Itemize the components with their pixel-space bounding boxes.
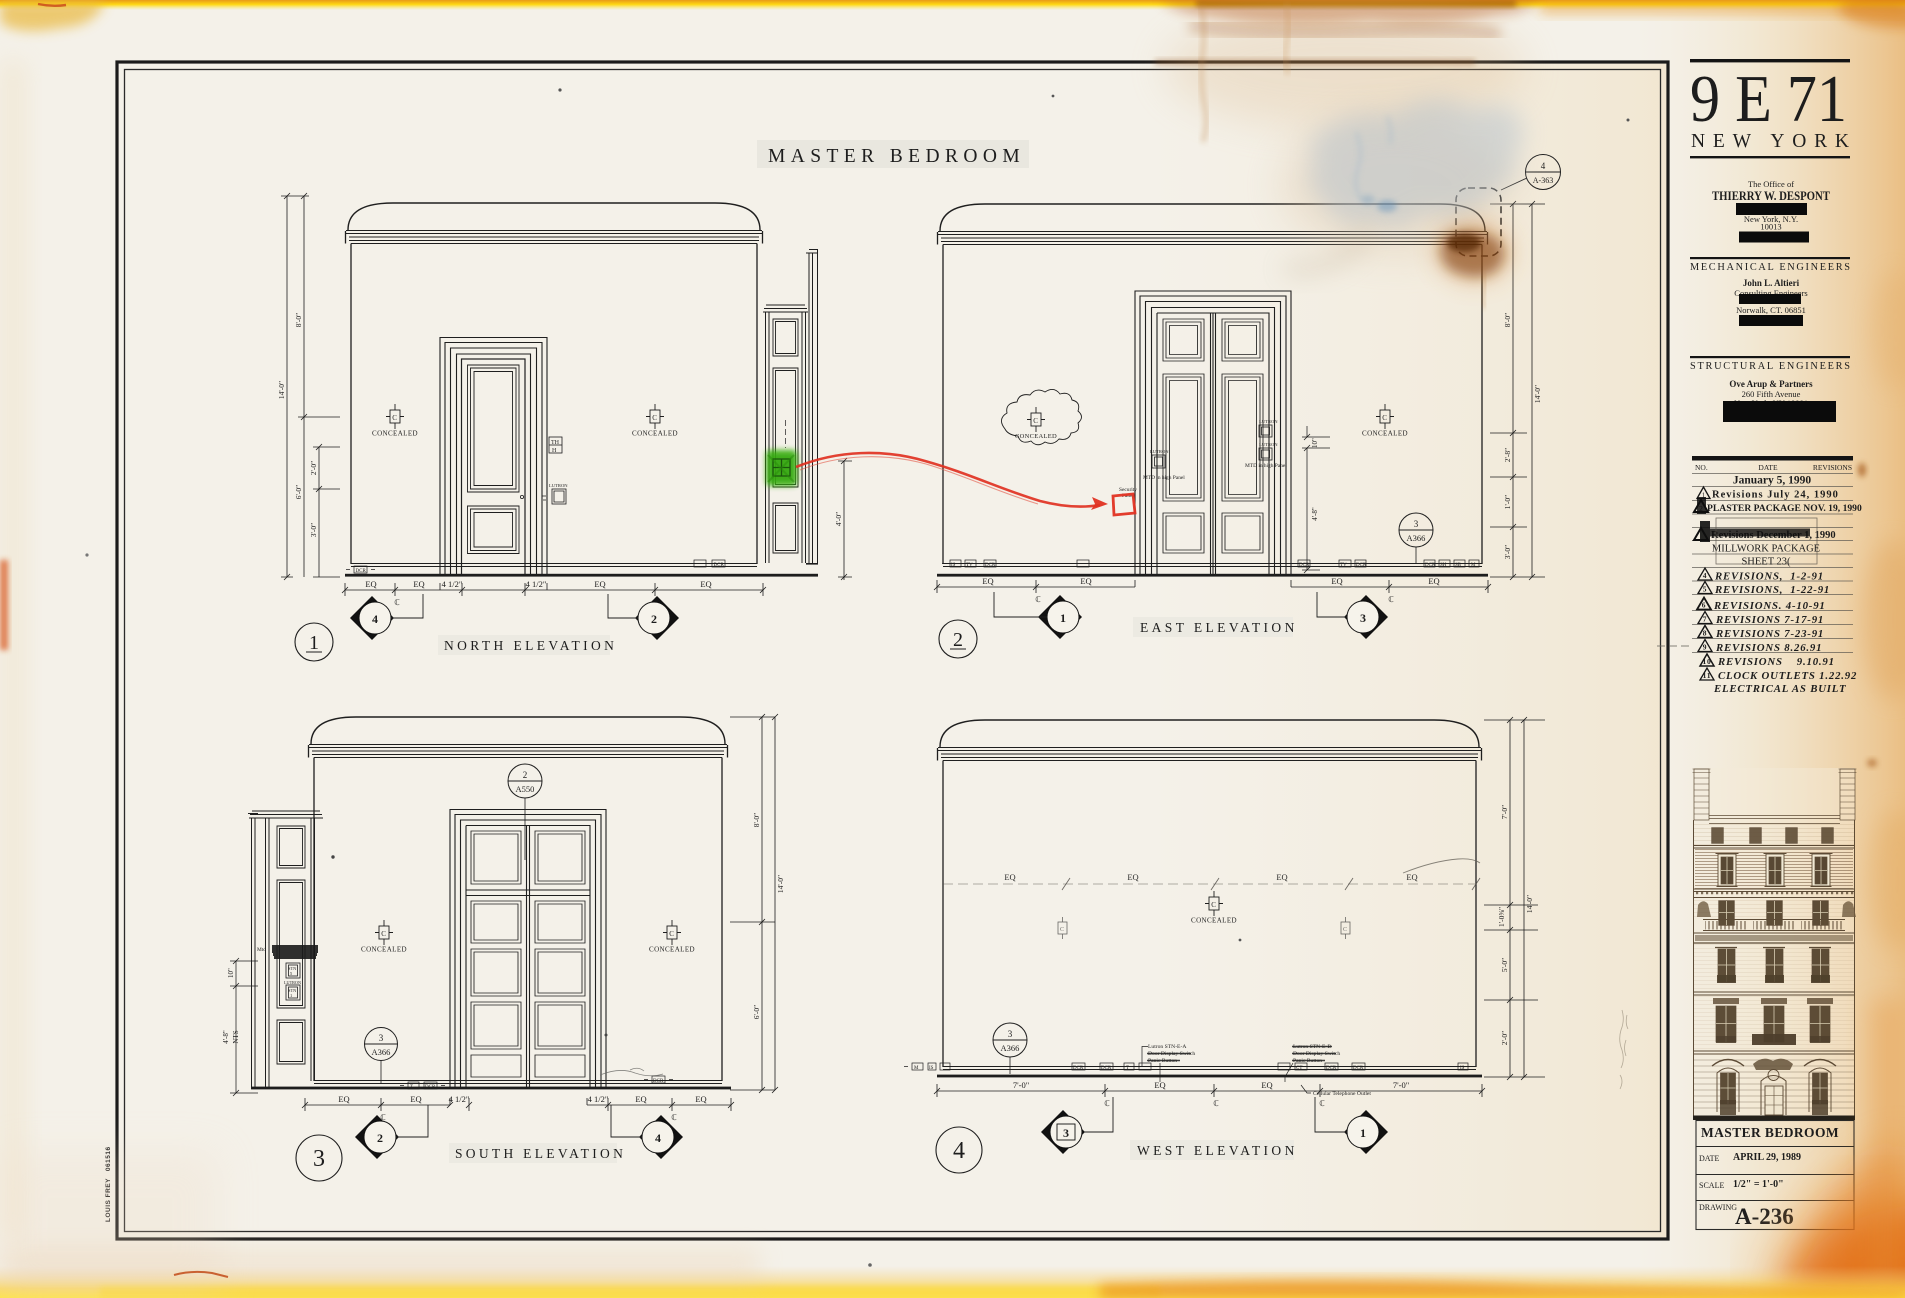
svg-text:Mtd: Mtd xyxy=(257,947,266,953)
svg-text:4 1/2": 4 1/2" xyxy=(588,1094,609,1104)
svg-text:CONCEALED: CONCEALED xyxy=(1362,430,1408,438)
svg-text:DCR: DCR xyxy=(714,563,725,568)
svg-text:4 1/2": 4 1/2" xyxy=(526,579,547,589)
svg-text:REVISIONS, 1-2-91: REVISIONS, 1-2-91 xyxy=(1714,571,1824,583)
svg-text:EQ: EQ xyxy=(1004,872,1015,882)
svg-text:1: 1 xyxy=(309,632,319,654)
svg-text:1'-0": 1'-0" xyxy=(1503,495,1512,509)
svg-text:ℂ: ℂ xyxy=(1035,595,1041,604)
svg-text:DCR: DCR xyxy=(1326,1066,1337,1071)
svg-text:LUTRON: LUTRON xyxy=(1259,419,1278,424)
svg-text:C: C xyxy=(652,414,657,422)
svg-text:14'-0": 14'-0" xyxy=(277,381,286,399)
svg-text:10": 10" xyxy=(1311,438,1319,448)
svg-text:9: 9 xyxy=(1703,643,1708,652)
svg-text:LUTRON: LUTRON xyxy=(1150,449,1169,454)
svg-text:DCR: DCR xyxy=(356,569,367,574)
svg-text:ELECTRICAL AS BUILT: ELECTRICAL AS BUILT xyxy=(1713,683,1846,695)
svg-text:DCR: DCR xyxy=(1101,1066,1112,1071)
svg-text:C: C xyxy=(392,414,397,422)
svg-text:CONCEALED: CONCEALED xyxy=(632,430,678,438)
svg-text:Norwalk, CT. 06851: Norwalk, CT. 06851 xyxy=(1736,305,1806,315)
svg-text:MASTER BEDROOM: MASTER BEDROOM xyxy=(1701,1125,1839,1140)
svg-text:3: 3 xyxy=(1360,611,1366,625)
svg-text:3: 3 xyxy=(313,1146,325,1172)
svg-text:TV: TV xyxy=(1340,563,1347,568)
svg-text:4'-0": 4'-0" xyxy=(834,512,843,526)
svg-text:1: 1 xyxy=(1360,1126,1366,1140)
svg-text:7'-0": 7'-0" xyxy=(1013,1080,1029,1090)
svg-text:CONCEALED: CONCEALED xyxy=(1191,917,1237,925)
svg-text:CT: CT xyxy=(1296,1066,1302,1071)
svg-text:2: 2 xyxy=(523,770,528,780)
svg-text:C: C xyxy=(669,930,674,938)
svg-text:4: 4 xyxy=(953,1138,965,1164)
svg-text:3'-0": 3'-0" xyxy=(309,523,318,537)
svg-text:7'-0": 7'-0" xyxy=(1500,805,1509,819)
svg-text:4: 4 xyxy=(655,1131,661,1145)
svg-text:MTD in high Panel: MTD in high Panel xyxy=(1143,475,1185,481)
svg-text:Revisions July 24, 1990: Revisions July 24, 1990 xyxy=(1712,490,1839,501)
svg-text:6'-0": 6'-0" xyxy=(294,485,303,499)
svg-text:IS: IS xyxy=(929,1066,934,1071)
svg-text:2'-0": 2'-0" xyxy=(309,461,318,475)
svg-text:EQ: EQ xyxy=(1154,1080,1165,1090)
svg-text:4'-8": 4'-8" xyxy=(1311,507,1319,521)
svg-text:MILLWORK PACKAGE: MILLWORK PACKAGE xyxy=(1712,544,1820,555)
svg-text:4: 4 xyxy=(372,612,378,626)
svg-text:EQ: EQ xyxy=(594,579,605,589)
svg-text:T: T xyxy=(1126,1066,1129,1071)
svg-text:10": 10" xyxy=(227,968,235,978)
svg-text:TH: TH xyxy=(551,440,560,446)
svg-text:SCALE: SCALE xyxy=(1699,1181,1724,1190)
svg-text:EQ: EQ xyxy=(695,1094,706,1104)
svg-text:5'-0": 5'-0" xyxy=(1500,958,1509,972)
svg-text:H: H xyxy=(552,448,557,454)
svg-text:EQ: EQ xyxy=(1261,1080,1272,1090)
svg-text:EQ: EQ xyxy=(1127,872,1138,882)
svg-text:CLOCK OUTLETS 1.22.92: CLOCK OUTLETS 1.22.92 xyxy=(1718,670,1857,682)
svg-text:4: 4 xyxy=(1703,571,1708,580)
svg-text:2: 2 xyxy=(953,629,963,651)
svg-text:NEW YORK: NEW YORK xyxy=(1691,131,1849,152)
svg-text:ℂ: ℂ xyxy=(1319,1099,1325,1108)
svg-text:LUTRON: LUTRON xyxy=(549,483,568,488)
svg-text:2: 2 xyxy=(377,1131,383,1145)
svg-text:THIERRY W. DESPONT: THIERRY W. DESPONT xyxy=(1712,188,1830,203)
svg-text:MTD in high Panel: MTD in high Panel xyxy=(1245,463,1287,469)
svg-text:EQ: EQ xyxy=(365,579,376,589)
svg-text:8'-0": 8'-0" xyxy=(1503,313,1512,327)
svg-text:A550: A550 xyxy=(516,784,535,794)
svg-text:John L. Altieri: John L. Altieri xyxy=(1743,278,1800,288)
svg-text:NORTH ELEVATION: NORTH ELEVATION xyxy=(444,638,617,653)
svg-text:REVISIONS, 1-22-91: REVISIONS, 1-22-91 xyxy=(1714,584,1830,596)
svg-text:C: C xyxy=(381,930,386,938)
svg-text:WEST ELEVATION: WEST ELEVATION xyxy=(1137,1143,1298,1158)
svg-text:ℂ: ℂ xyxy=(1213,1099,1219,1108)
svg-text:A366: A366 xyxy=(372,1047,391,1057)
svg-text:MASTER BEDROOM: MASTER BEDROOM xyxy=(768,146,1025,167)
svg-text:14'-0": 14'-0" xyxy=(1533,385,1542,403)
svg-text:DCR: DCR xyxy=(1073,1066,1084,1071)
svg-text:ℂ: ℂ xyxy=(1388,595,1394,604)
svg-text:DCR: DCR xyxy=(1425,563,1436,568)
svg-text:8: 8 xyxy=(1703,629,1708,638)
svg-text:M: M xyxy=(1471,563,1476,568)
svg-text:6'-0": 6'-0" xyxy=(752,1005,761,1019)
svg-text:DCR: DCR xyxy=(1353,1066,1364,1071)
svg-text:M: M xyxy=(914,1066,919,1071)
svg-text:14'-0": 14'-0" xyxy=(1525,895,1534,913)
svg-text:ℂ: ℂ xyxy=(394,598,400,607)
svg-text:EQ: EQ xyxy=(410,1094,421,1104)
svg-text:5: 5 xyxy=(1703,585,1708,594)
svg-text:7: 7 xyxy=(1703,615,1708,624)
svg-text:2'-0": 2'-0" xyxy=(1500,1031,1509,1045)
svg-text:REVISIONS 9.10.91: REVISIONS 9.10.91 xyxy=(1717,656,1835,668)
svg-text:C: C xyxy=(1060,927,1064,933)
svg-text:LUTRON: LUTRON xyxy=(1259,442,1278,447)
svg-text:8'-0": 8'-0" xyxy=(752,813,761,827)
svg-text:C: C xyxy=(1343,927,1347,933)
svg-text:A366: A366 xyxy=(1001,1043,1020,1053)
svg-text:3: 3 xyxy=(1008,1029,1013,1039)
svg-text:10013: 10013 xyxy=(1760,222,1781,232)
svg-text:C: C xyxy=(1382,414,1387,422)
svg-text:EAST ELEVATION: EAST ELEVATION xyxy=(1140,620,1298,635)
svg-text:EQ: EQ xyxy=(1406,872,1417,882)
svg-text:DCR: DCR xyxy=(1299,563,1310,568)
svg-text:Cellular Telephone Outlet: Cellular Telephone Outlet xyxy=(1313,1091,1371,1097)
svg-text:LUTRON: LUTRON xyxy=(284,980,301,985)
svg-text:NTS: NTS xyxy=(232,1030,240,1043)
svg-text:SH: SH xyxy=(1440,563,1447,568)
svg-text:10: 10 xyxy=(1702,657,1711,666)
svg-text:1: 1 xyxy=(1060,611,1066,625)
svg-text:REVISIONS 7-23-91: REVISIONS 7-23-91 xyxy=(1715,628,1824,640)
svg-text:DCR: DCR xyxy=(653,1079,664,1084)
svg-text:4'-8": 4'-8" xyxy=(222,1030,230,1044)
svg-text:CONCEALED: CONCEALED xyxy=(1015,433,1057,440)
svg-text:4: 4 xyxy=(1541,161,1546,171)
svg-text:TV: TV xyxy=(966,563,973,568)
svg-text:Ove Arup & Partners: Ove Arup & Partners xyxy=(1729,379,1813,389)
svg-text:1'-0⅝": 1'-0⅝" xyxy=(1497,907,1506,927)
svg-text:PLASTER PACKAGE NOV. 19, 1990: PLASTER PACKAGE NOV. 19, 1990 xyxy=(1707,503,1862,514)
svg-text:IS: IS xyxy=(1460,1066,1465,1071)
svg-text:2'-8": 2'-8" xyxy=(1503,448,1512,462)
svg-text:January 5, 1990: January 5, 1990 xyxy=(1733,475,1812,487)
svg-text:9 E 71: 9 E 71 xyxy=(1690,62,1847,136)
svg-text:EQ: EQ xyxy=(1080,576,1091,586)
svg-text:T: T xyxy=(410,1085,413,1090)
svg-text:IS: IS xyxy=(951,563,956,568)
svg-text:C: C xyxy=(1211,901,1216,909)
svg-text:Lutron STN-E-A: Lutron STN-E-A xyxy=(1148,1044,1186,1050)
svg-text:EQ: EQ xyxy=(982,576,993,586)
svg-text:DCR: DCR xyxy=(985,563,996,568)
svg-text:3'-0": 3'-0" xyxy=(1503,545,1512,559)
svg-text:REVISIONS 8.26.91: REVISIONS 8.26.91 xyxy=(1715,642,1822,654)
svg-text:SHEET 23(: SHEET 23( xyxy=(1741,557,1791,568)
svg-text:A366: A366 xyxy=(1407,533,1426,543)
svg-text:SB: SB xyxy=(1455,563,1462,568)
svg-text:EQ: EQ xyxy=(700,579,711,589)
svg-text:CONCEALED: CONCEALED xyxy=(361,946,407,954)
svg-text:1: 1 xyxy=(290,993,292,998)
svg-text:11: 11 xyxy=(1703,671,1712,680)
svg-text:3: 3 xyxy=(379,1033,384,1043)
svg-text:CONCEALED: CONCEALED xyxy=(649,946,695,954)
svg-text:REVISIONS. 4-10-91: REVISIONS. 4-10-91 xyxy=(1713,600,1826,612)
svg-text:DATE: DATE xyxy=(1699,1154,1720,1163)
svg-text:EQ: EQ xyxy=(413,579,424,589)
svg-text:6: 6 xyxy=(1702,601,1707,610)
svg-text:14'-0": 14'-0" xyxy=(776,875,785,893)
svg-text:SOUTH ELEVATION: SOUTH ELEVATION xyxy=(455,1146,626,1161)
svg-text:A-363: A-363 xyxy=(1533,176,1553,185)
svg-text:REVISIONS: REVISIONS xyxy=(1813,463,1852,472)
svg-text:REVISIONS 7-17-91: REVISIONS 7-17-91 xyxy=(1715,614,1824,626)
svg-text:NO.: NO. xyxy=(1695,463,1708,472)
svg-text:DATE: DATE xyxy=(1758,463,1778,472)
svg-text:CONCEALED: CONCEALED xyxy=(372,430,418,438)
svg-text:7'-0": 7'-0" xyxy=(1393,1080,1409,1090)
svg-text:3: 3 xyxy=(1063,1126,1069,1140)
svg-text:8'-0": 8'-0" xyxy=(294,313,303,327)
svg-text:4 1/2": 4 1/2" xyxy=(449,1094,470,1104)
svg-text:EQ: EQ xyxy=(1331,576,1342,586)
svg-text:ℂ: ℂ xyxy=(1104,1099,1110,1108)
svg-text:DCR: DCR xyxy=(425,1085,436,1090)
svg-text:3: 3 xyxy=(1414,519,1419,529)
svg-text:EQ: EQ xyxy=(635,1094,646,1104)
svg-text:ℂ: ℂ xyxy=(671,1113,677,1122)
svg-text:C: C xyxy=(1033,417,1038,425)
svg-text:4 1/2": 4 1/2" xyxy=(442,579,463,589)
svg-text:2: 2 xyxy=(651,612,657,626)
svg-text:DCR: DCR xyxy=(1356,563,1367,568)
svg-text:EQ: EQ xyxy=(1428,576,1439,586)
svg-text:EQ: EQ xyxy=(1276,872,1287,882)
svg-text:EQ: EQ xyxy=(338,1094,349,1104)
